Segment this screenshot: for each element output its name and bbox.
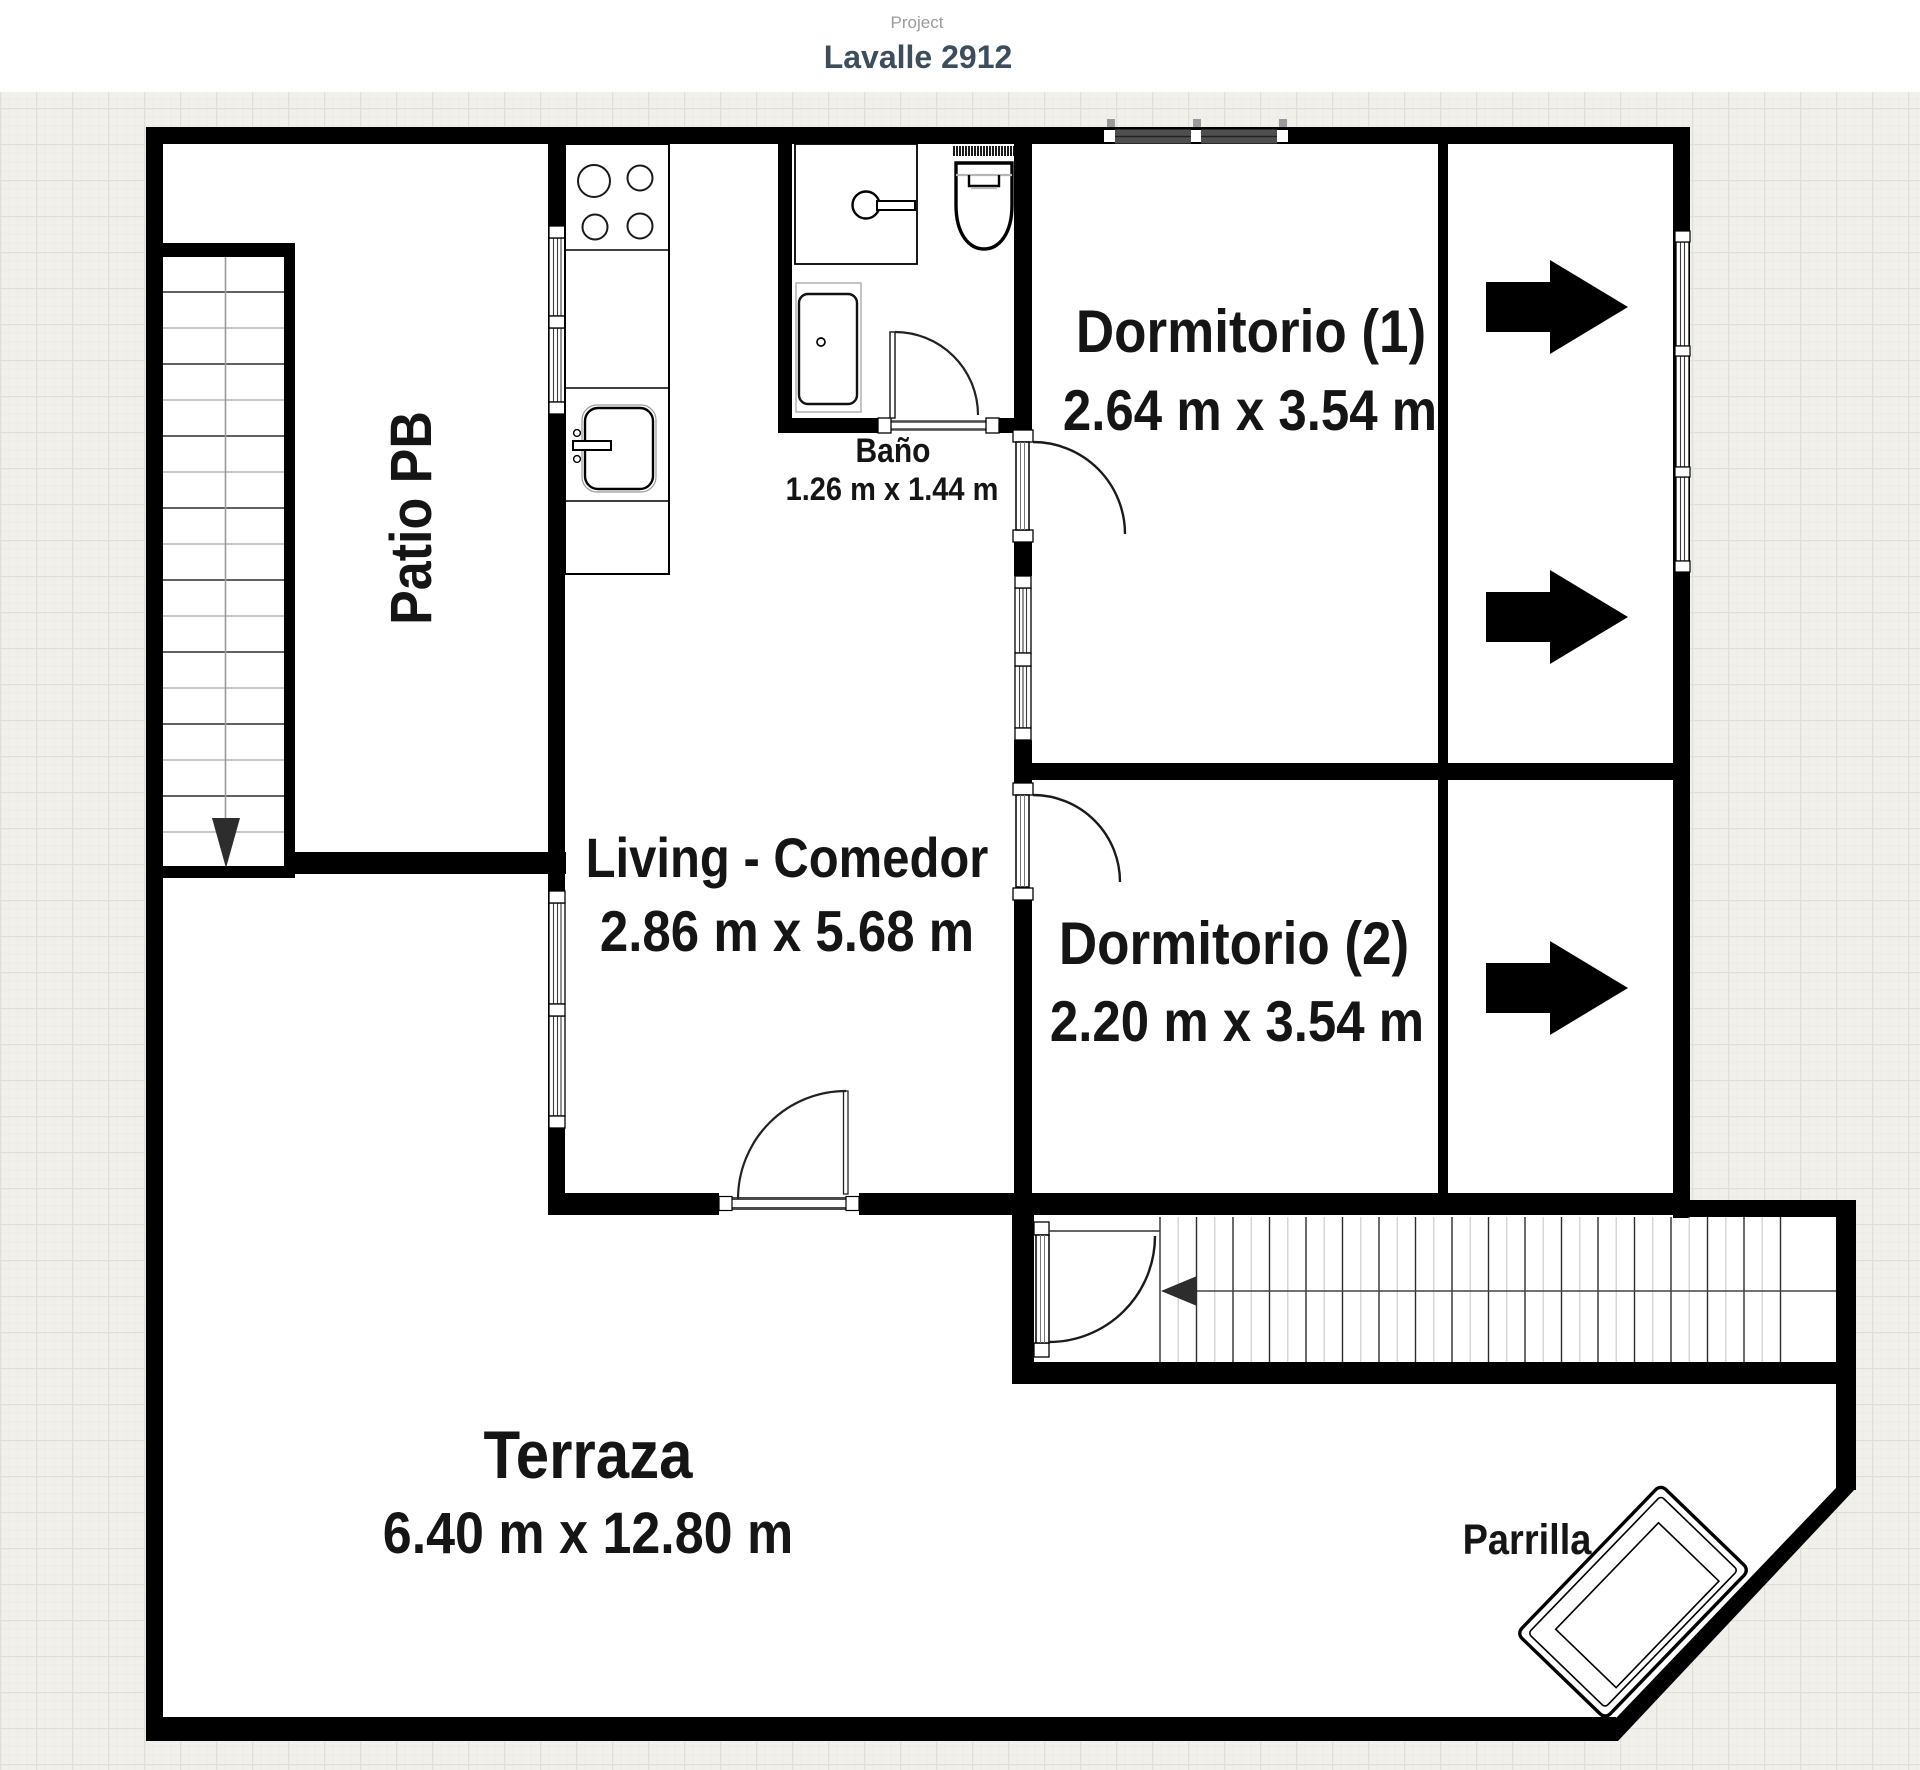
svg-text:6.40 m x 12.80 m: 6.40 m x 12.80 m	[383, 1500, 793, 1566]
svg-text:1.26 m x 1.44 m: 1.26 m x 1.44 m	[786, 470, 999, 507]
svg-text:Project: Project	[891, 13, 944, 32]
svg-text:Terraza: Terraza	[484, 1417, 693, 1493]
svg-text:Dormitorio (1): Dormitorio (1)	[1076, 298, 1426, 365]
svg-text:Baño: Baño	[856, 431, 931, 469]
svg-text:Living - Comedor: Living - Comedor	[586, 828, 989, 889]
svg-text:Patio PB: Patio PB	[378, 411, 444, 625]
svg-text:2.20 m x 3.54 m: 2.20 m x 3.54 m	[1050, 989, 1424, 1054]
svg-text:Parrilla: Parrilla	[1463, 1515, 1592, 1564]
svg-text:Lavalle 2912: Lavalle 2912	[824, 39, 1013, 75]
svg-text:2.64 m x 3.54 m: 2.64 m x 3.54 m	[1063, 378, 1437, 443]
svg-text:Dormitorio (2): Dormitorio (2)	[1059, 910, 1409, 977]
svg-text:2.86 m x 5.68 m: 2.86 m x 5.68 m	[600, 899, 974, 964]
